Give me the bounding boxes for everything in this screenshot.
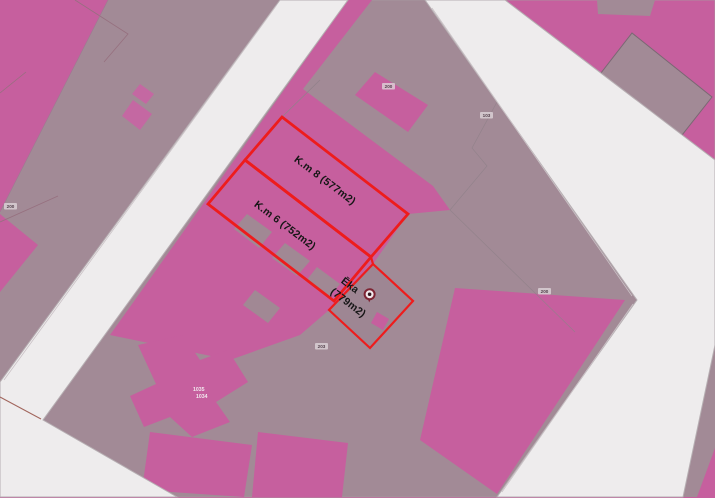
parcel-number-text: 200 xyxy=(7,204,15,209)
parcel-number-text: 1035 xyxy=(193,387,205,393)
building-footprint xyxy=(252,432,348,497)
parcel-number-label: 103 xyxy=(480,112,493,119)
parcel-number-text: 200 xyxy=(385,84,393,89)
parcel-number-label: 200 xyxy=(4,203,17,210)
parcel-number-label: 203 xyxy=(315,343,328,350)
parcel-number-text: 200 xyxy=(541,289,549,294)
building-footprint xyxy=(597,0,655,16)
parcel-number-label: 200 xyxy=(538,288,551,295)
map-viewport[interactable]: K.m 8 (577m2) K.m 6 (752m2) Ēka (779m2) … xyxy=(0,0,715,498)
parcel-number-text: 203 xyxy=(318,344,326,349)
parcel-number-label: 200 xyxy=(382,83,395,90)
parcel-number-text: 1034 xyxy=(196,394,208,400)
parcel-number-text: 103 xyxy=(483,113,491,118)
cadastral-map[interactable]: K.m 8 (577m2) K.m 6 (752m2) Ēka (779m2) … xyxy=(0,0,715,498)
